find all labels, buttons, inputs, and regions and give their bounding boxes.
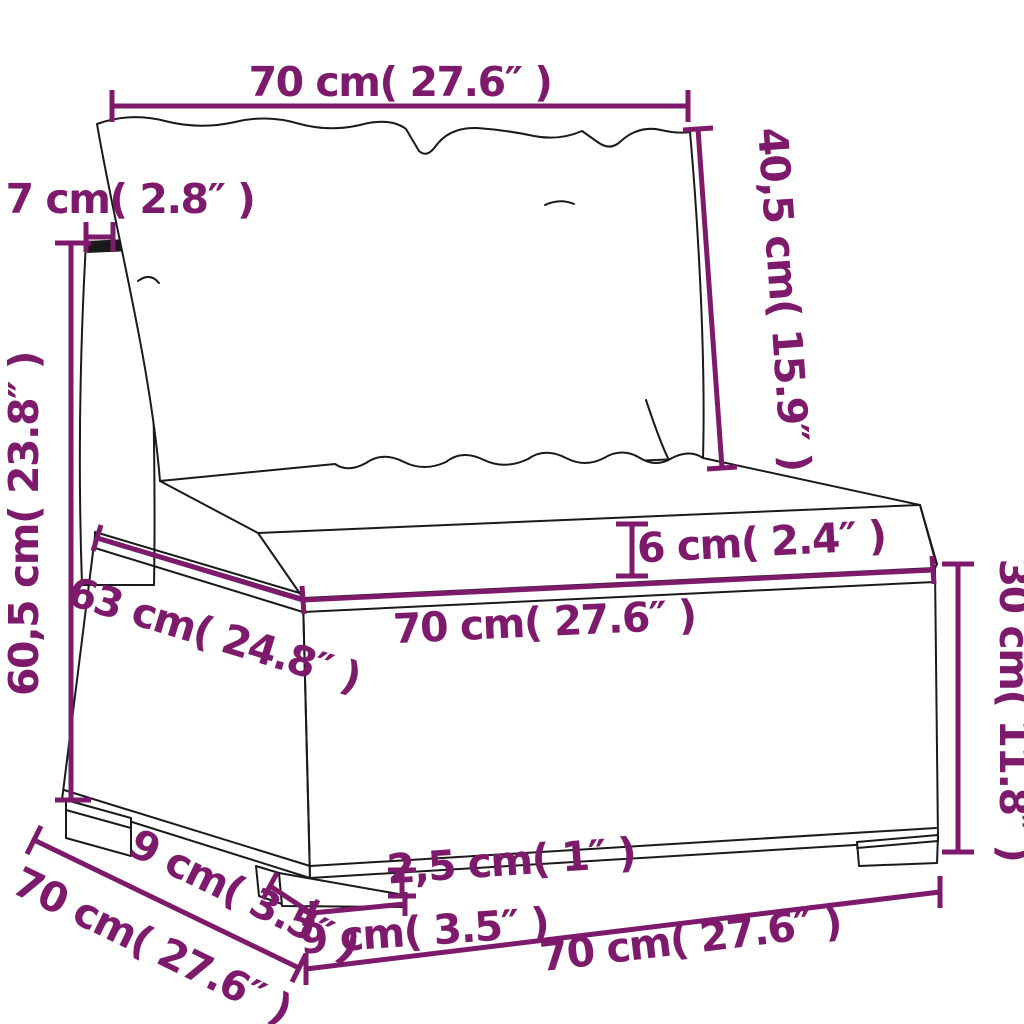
tick (302, 586, 304, 614)
tick (683, 128, 713, 130)
dim-base-height-label: 30 cm( 11.8″ ) (990, 559, 1024, 862)
dim-overall-width-label: 70 cm( 27.6″ ) (537, 897, 843, 981)
sofa-drawing (62, 117, 938, 907)
dim-leg-height-label: 2,5 cm( 1″ ) (385, 828, 637, 893)
dim-back-width: 70 cm( 27.6″ ) (112, 58, 688, 122)
sofa-dimension-diagram: 70 cm( 27.6″ ) 40,5 cm( 15.9″ ) 7 cm( 2.… (0, 0, 1024, 1024)
dim-leg-height: 2,5 cm( 1″ ) (385, 828, 637, 896)
dim-back-width-label: 70 cm( 27.6″ ) (249, 58, 552, 106)
dim-total-height-label: 60,5 cm( 23.8″ ) (0, 352, 48, 696)
tick (707, 467, 737, 469)
back-cushion-outline (97, 117, 704, 481)
back-cushion (97, 117, 704, 481)
dim-base-height: 30 cm( 11.8″ ) (942, 559, 1024, 862)
dim-back-height-label: 40,5 cm( 15.9″ ) (748, 126, 820, 472)
leg-right (857, 835, 938, 866)
dim-seat-width-label: 70 cm( 27.6″ ) (392, 591, 697, 653)
dim-total-height: 60,5 cm( 23.8″ ) (0, 243, 91, 800)
tick (932, 556, 934, 584)
dim-frame-width-label: 7 cm( 2.8″ ) (6, 175, 255, 223)
